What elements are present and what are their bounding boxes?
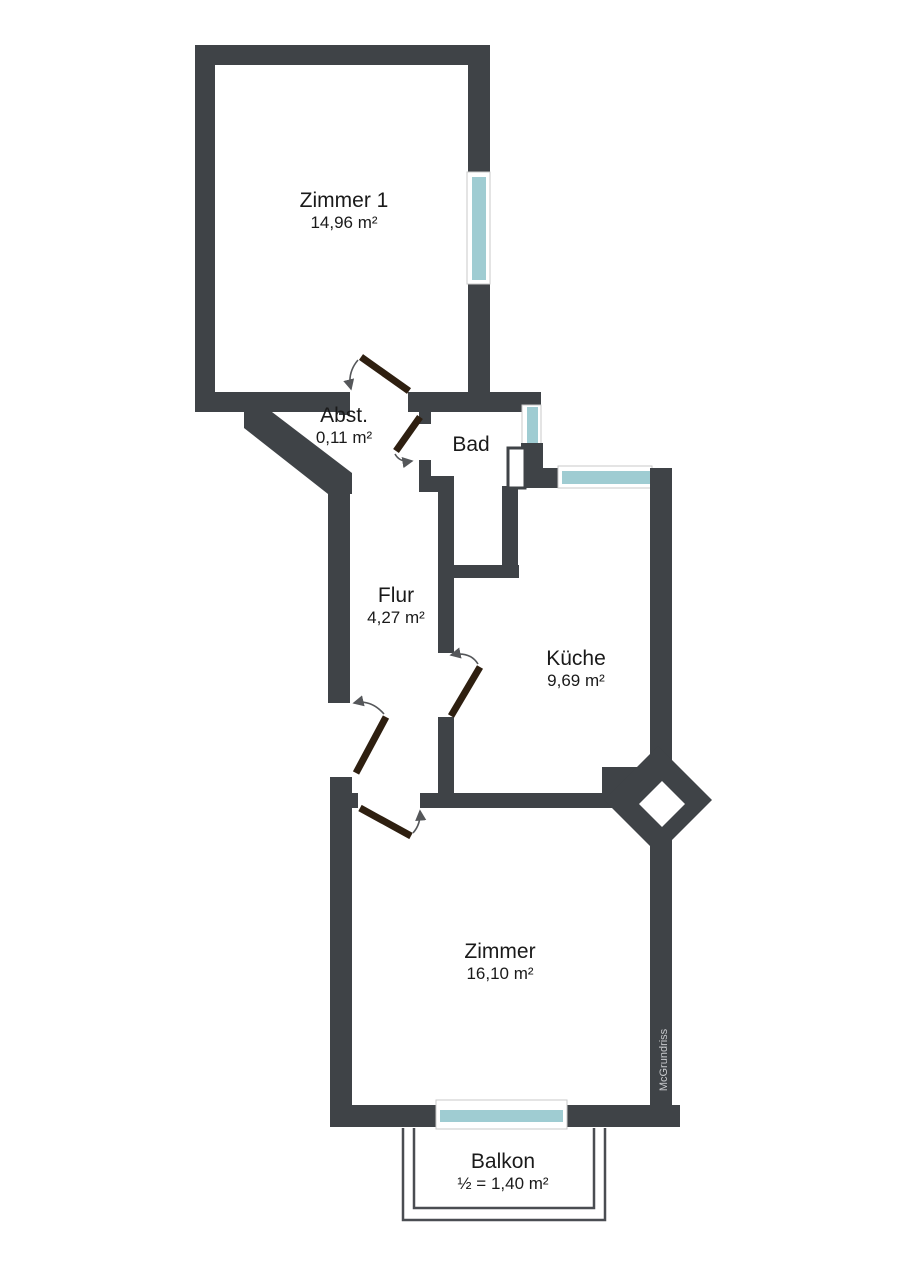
door-zimmer-leaf [360, 808, 411, 836]
label-flur: Flur 4,27 m² [286, 584, 506, 628]
room-area-kueche: 9,69 m² [466, 670, 686, 691]
label-balkon: Balkon ½ = 1,40 m² [393, 1150, 613, 1194]
room-area-zimmer1: 14,96 m² [234, 212, 454, 233]
room-name-zimmer1: Zimmer 1 [234, 189, 454, 212]
label-kueche: Küche 9,69 m² [466, 647, 686, 691]
door-zimmer1-swing [350, 360, 358, 389]
floor-plan: McGrundriss Zimmer 1 14,96 m² Abst. 0,11… [0, 0, 905, 1280]
door-entry-swing [354, 702, 384, 714]
room-area-balkon: ½ = 1,40 m² [393, 1173, 613, 1194]
wall-kueche-left-lower [438, 717, 454, 795]
wall-zimmer1-left [195, 45, 215, 412]
door-zimmer-swing [413, 811, 420, 833]
room-area-zimmer: 16,10 m² [390, 963, 610, 984]
wall-zimmer-bottom-right [566, 1105, 680, 1127]
window-balkon [440, 1110, 563, 1122]
wall-zimmer1-right-upper [468, 45, 490, 177]
wall-middle-bottom [420, 793, 610, 808]
wall-zimmer1-top [195, 45, 490, 65]
wall-bad-door-jamb-lower [419, 460, 431, 478]
wall-zimmer-left [330, 777, 352, 1127]
window-zimmer1 [472, 177, 486, 280]
room-name-abst: Abst. [234, 404, 454, 427]
wall-kueche-step [521, 468, 562, 488]
label-zimmer1: Zimmer 1 14,96 m² [234, 189, 454, 233]
wall-kueche-right [650, 468, 672, 768]
wall-zimmer-door-jamb [350, 793, 358, 808]
room-name-balkon: Balkon [393, 1150, 613, 1173]
door-zimmer1-leaf [361, 357, 409, 391]
room-name-bad: Bad [361, 433, 581, 456]
door-entry-leaf [356, 717, 386, 773]
room-name-kueche: Küche [466, 647, 686, 670]
watermark: McGrundriss [658, 1028, 670, 1091]
room-area-flur: 4,27 m² [286, 607, 506, 628]
wall-zimmer-bottom-left [330, 1105, 438, 1127]
window-kueche [562, 471, 650, 484]
wall-bad-bottom [446, 565, 519, 578]
room-name-flur: Flur [286, 584, 506, 607]
room-name-zimmer: Zimmer [390, 940, 610, 963]
wall-bad-right [502, 486, 518, 578]
label-zimmer: Zimmer 16,10 m² [390, 940, 610, 984]
label-bad: Bad [361, 433, 581, 456]
